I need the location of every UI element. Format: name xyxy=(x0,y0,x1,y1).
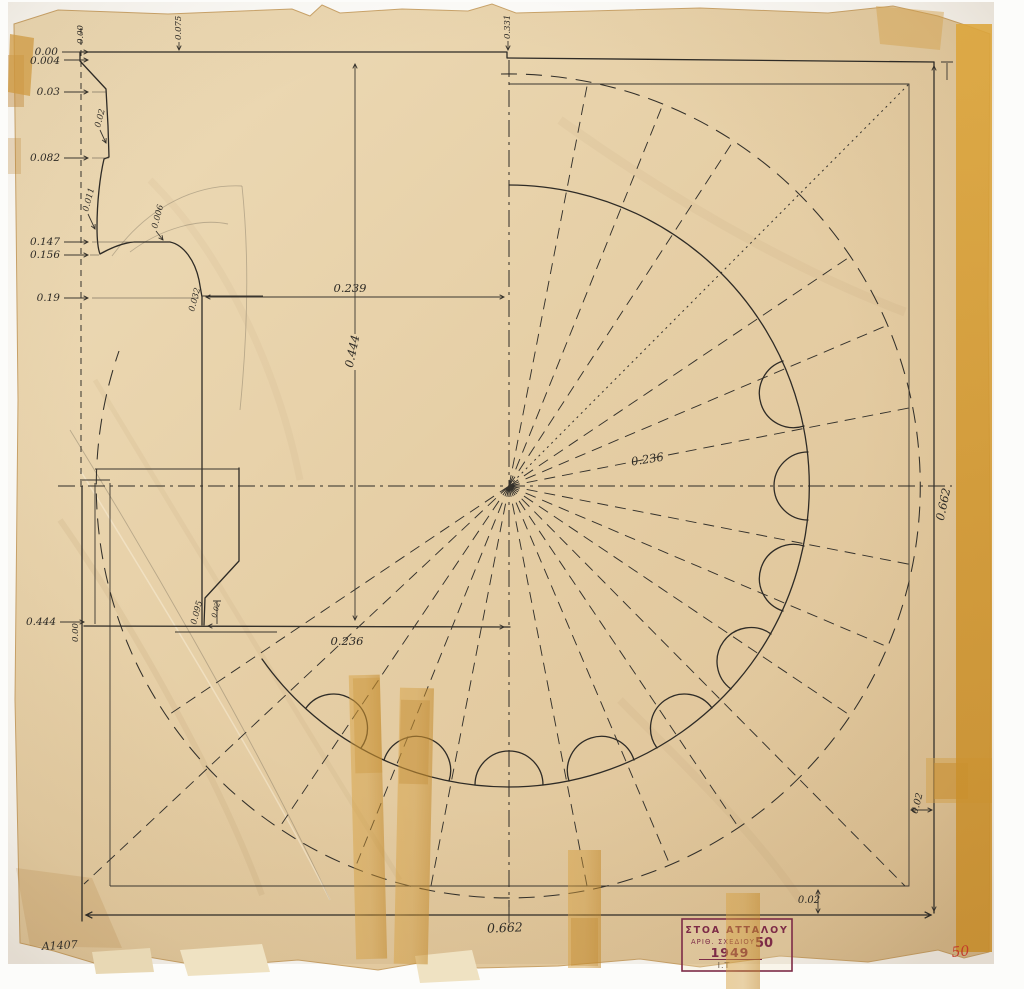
scale-label: 0.082 xyxy=(30,152,60,164)
origin-label-top: 0.00 xyxy=(76,24,86,44)
dim-square-width: 0.662 xyxy=(487,919,523,935)
scale-label: 0.156 xyxy=(30,249,60,261)
paper-sheet xyxy=(8,2,994,983)
offset-label: 0.331 xyxy=(503,15,513,39)
scale-label: 0.19 xyxy=(37,292,61,304)
scale-label: 0.004 xyxy=(30,55,60,67)
tape-strip xyxy=(353,678,382,774)
tape-strip xyxy=(399,700,430,785)
drawing-canvas: 0.00 0.004 0.03 0.082 0.147 0.156 0.19 0… xyxy=(0,0,1024,989)
dim-width-bottom: 0.236 xyxy=(331,634,364,648)
sheet-number-red: 50 xyxy=(951,943,970,961)
catalog-number: A1407 xyxy=(40,938,78,953)
tape-strip xyxy=(571,918,598,966)
scale-label: 0.147 xyxy=(30,236,60,248)
scale-label: 0.444 xyxy=(26,616,56,628)
dim-width-top: 0.239 xyxy=(334,281,367,295)
tape-piece-top-right xyxy=(876,6,944,50)
origin-label-bottom: 0.00 xyxy=(71,622,81,642)
sheet-edge-strip xyxy=(956,24,992,952)
tape-strip xyxy=(726,893,760,989)
dim-offset-bottom: 0.02 xyxy=(798,895,820,906)
offset-label: 0.075 xyxy=(174,16,184,40)
scale-label: 0.03 xyxy=(37,86,61,98)
scanned-drawing-page: 0.00 0.004 0.03 0.082 0.147 0.156 0.19 0… xyxy=(0,0,1024,989)
stain-left-tab xyxy=(8,138,21,174)
paper-fragment xyxy=(92,948,154,974)
